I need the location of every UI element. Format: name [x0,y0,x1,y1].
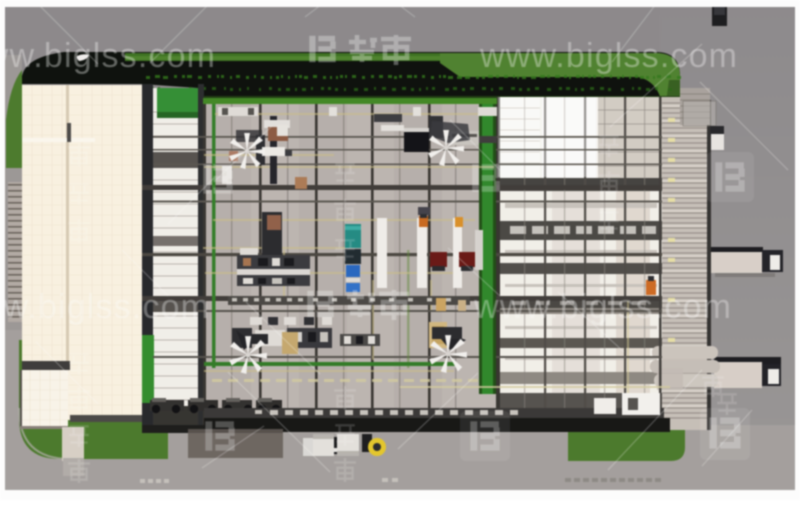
svg-text:www.biglss.com: www.biglss.com [0,288,209,326]
svg-text:www.biglss.com: www.biglss.com [479,37,737,75]
svg-text:www.biglss.com: www.biglss.com [473,288,731,326]
